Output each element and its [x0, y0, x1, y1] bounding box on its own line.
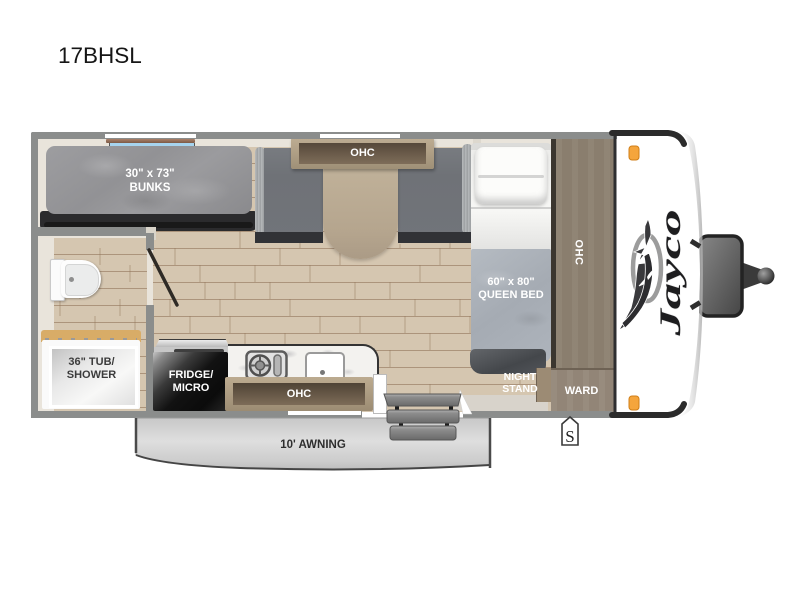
svg-text:S: S: [565, 427, 574, 446]
svg-text:10' AWNING: 10' AWNING: [280, 439, 346, 451]
